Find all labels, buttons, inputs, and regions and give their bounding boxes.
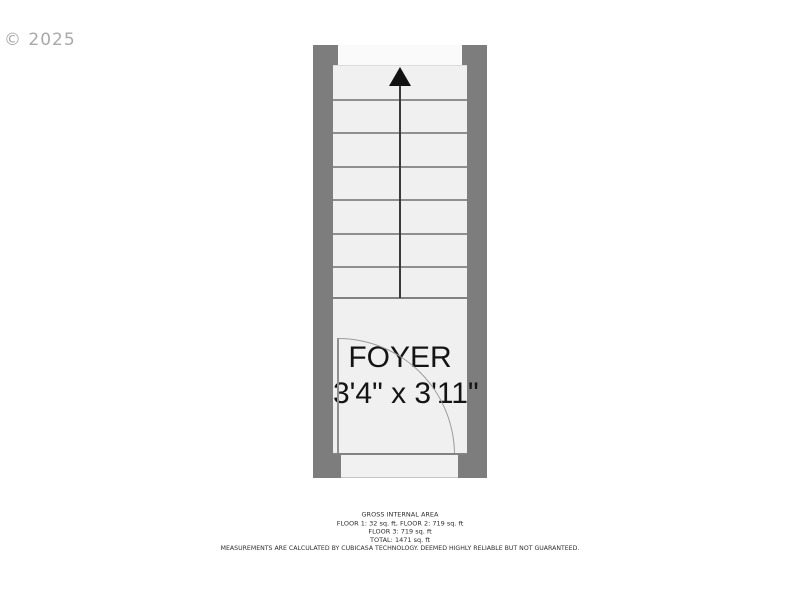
right-wall-upper-jog: [462, 45, 467, 65]
bottom-right-wall: [458, 455, 487, 478]
floor-areas-line-1: FLOOR 1: 32 sq. ft, FLOOR 2: 719 sq. ft: [214, 519, 586, 527]
disclaimer: MEASUREMENTS ARE CALCULATED BY CUBICASA …: [214, 544, 586, 552]
gross-internal-area-title: GROSS INTERNAL AREA: [214, 511, 586, 519]
total-area: TOTAL: 1471 sq. ft: [214, 536, 586, 544]
stair-direction-line: [399, 79, 401, 298]
stair-upper-landing: [338, 45, 462, 65]
bottom-left-wall: [313, 455, 341, 478]
doorway-threshold: [341, 455, 458, 478]
floor-areas-line-2: FLOOR 3: 719 sq. ft: [214, 528, 586, 536]
left-wall: [313, 45, 333, 455]
floor-plan-page: © 2025 FOYER 3'4" x 3'11" GROSS INTERNAL…: [0, 0, 800, 600]
foyer-interior: FOYER 3'4" x 3'11": [333, 65, 467, 455]
copyright-watermark: © 2025: [4, 30, 76, 50]
up-arrow-icon: [389, 67, 411, 86]
footer: GROSS INTERNAL AREA FLOOR 1: 32 sq. ft, …: [214, 511, 586, 553]
